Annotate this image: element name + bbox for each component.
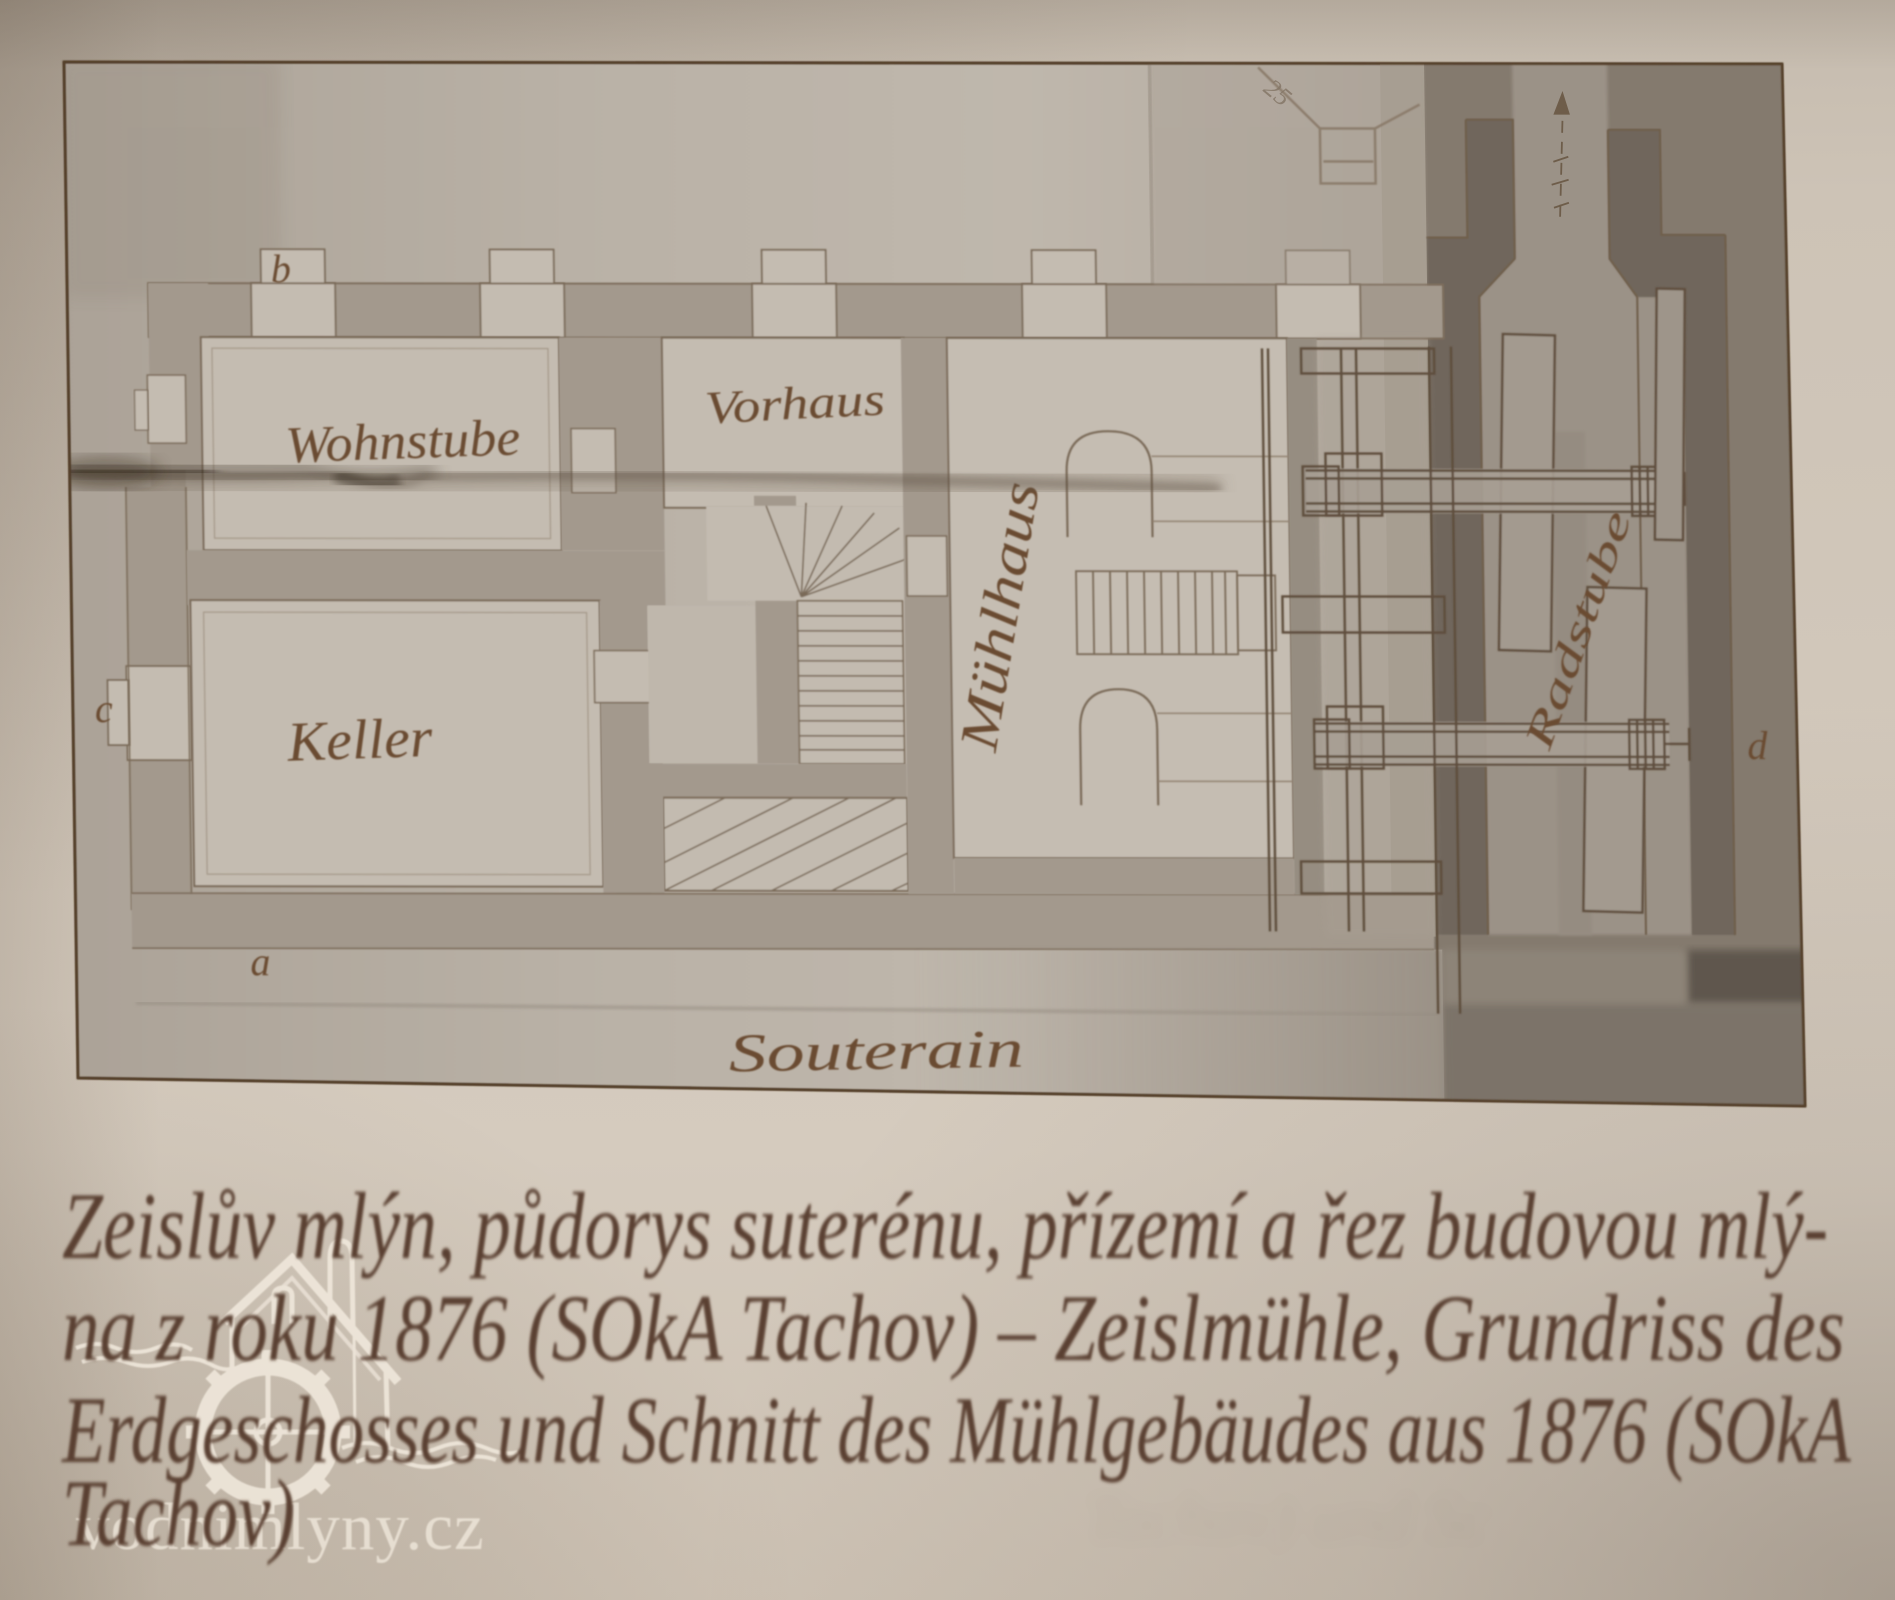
svg-text:b: b xyxy=(271,246,292,291)
svg-text:Souterain: Souterain xyxy=(728,1018,1025,1083)
svg-text:c: c xyxy=(95,686,114,731)
svg-text:Erdgeschosses und Schnitt des: Erdgeschosses und Schnitt des Mühlgebäud… xyxy=(61,1378,1851,1483)
svg-text:Keller: Keller xyxy=(285,707,434,774)
svg-text:d: d xyxy=(1747,723,1769,768)
svg-text:Vorhaus: Vorhaus xyxy=(703,373,886,433)
svg-text:a: a xyxy=(250,939,271,984)
svg-text:na z roku 1876 (SOkA Tachov) –: na z roku 1876 (SOkA Tachov) – Zeislmühl… xyxy=(62,1276,1845,1381)
svg-text:Zeislův mlýn, půdorys suterénu: Zeislův mlýn, půdorys suterénu, přízemí … xyxy=(62,1174,1828,1279)
svg-text:Tachov): Tachov) xyxy=(62,1461,295,1566)
svg-text:Tachov) und Sc: Tachov) und Sc xyxy=(1085,1482,1490,1555)
